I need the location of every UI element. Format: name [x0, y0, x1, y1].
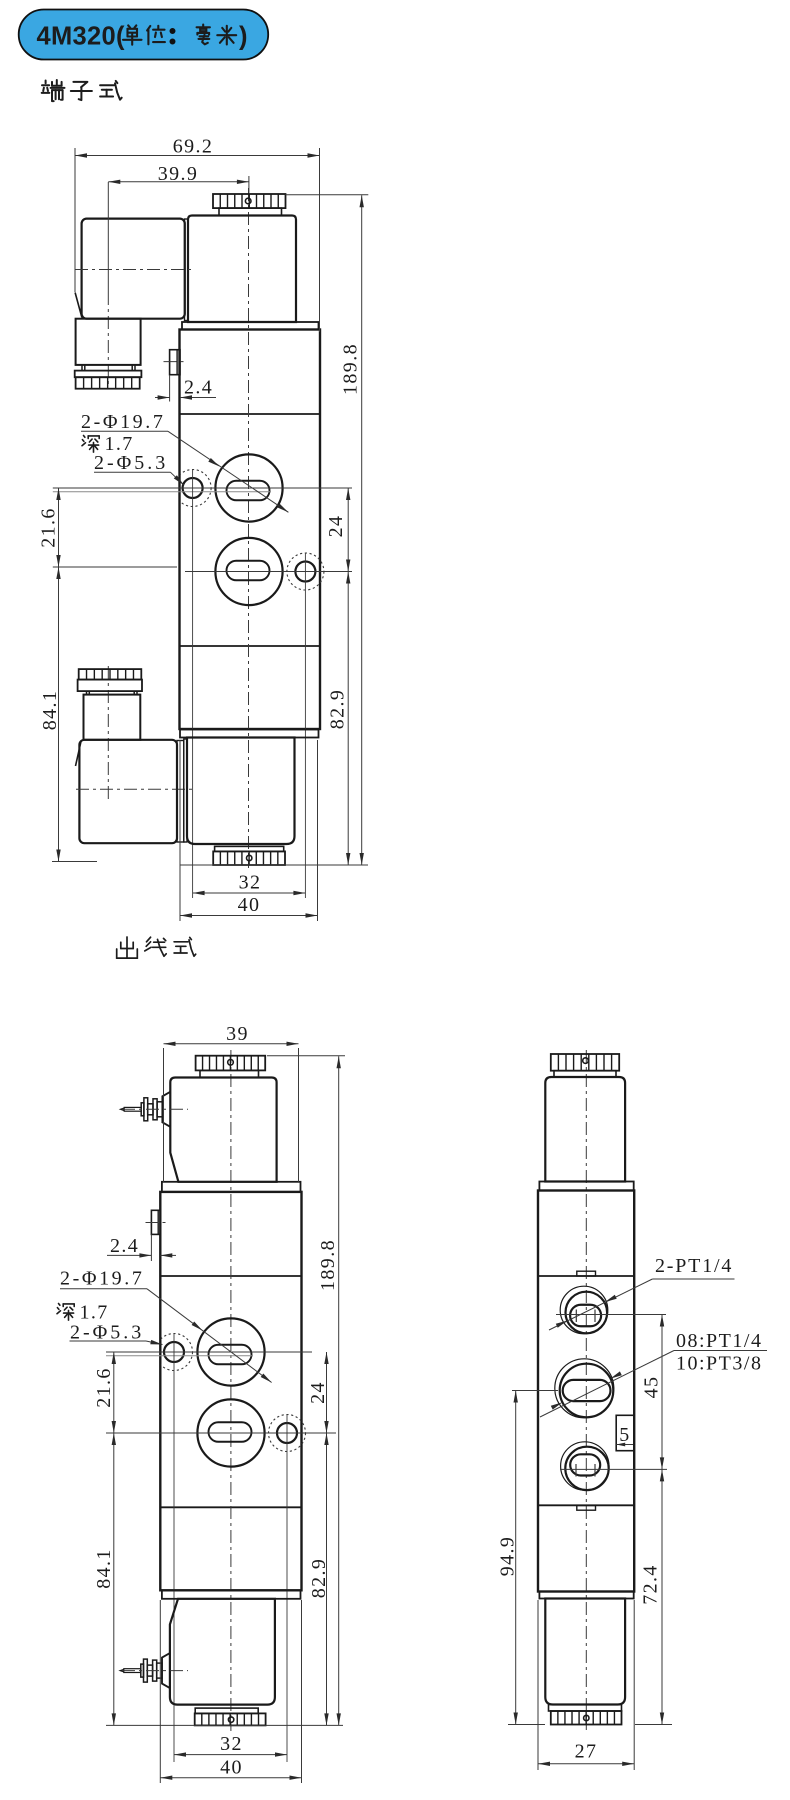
- svg-text:72.4: 72.4: [640, 1564, 662, 1605]
- svg-text:189.8: 189.8: [340, 343, 362, 395]
- svg-text:2-Φ19.7: 2-Φ19.7: [60, 1268, 144, 1290]
- svg-text:2-PT1/4: 2-PT1/4: [655, 1255, 733, 1277]
- svg-text:32: 32: [239, 872, 262, 894]
- svg-text:21.6: 21.6: [38, 507, 60, 548]
- svg-text:84.1: 84.1: [93, 1548, 115, 1589]
- svg-text:27: 27: [575, 1741, 598, 1763]
- svg-text:10:PT3/8: 10:PT3/8: [676, 1353, 762, 1375]
- svg-text:4M320(: 4M320(: [37, 22, 125, 50]
- svg-text:189.8: 189.8: [317, 1239, 339, 1291]
- svg-text:2.4: 2.4: [184, 377, 213, 399]
- svg-text:39.9: 39.9: [158, 163, 199, 185]
- svg-text:84.1: 84.1: [39, 690, 61, 731]
- svg-text:82.9: 82.9: [327, 689, 349, 730]
- svg-text:32: 32: [220, 1733, 243, 1755]
- svg-text:21.6: 21.6: [93, 1367, 115, 1408]
- svg-text:08:PT1/4: 08:PT1/4: [676, 1330, 762, 1352]
- svg-text:24: 24: [325, 515, 347, 538]
- svg-text:): ): [239, 22, 249, 50]
- svg-text:39: 39: [226, 1023, 249, 1045]
- svg-text:24: 24: [307, 1381, 329, 1404]
- svg-text:2-Φ19.7: 2-Φ19.7: [81, 411, 165, 433]
- svg-text:40: 40: [238, 894, 261, 916]
- svg-text:82.9: 82.9: [308, 1558, 330, 1599]
- svg-text:69.2: 69.2: [173, 136, 214, 158]
- svg-text:45: 45: [641, 1376, 663, 1399]
- svg-text:40: 40: [220, 1757, 243, 1779]
- svg-text:2.4: 2.4: [110, 1235, 139, 1257]
- svg-text:94.9: 94.9: [497, 1536, 519, 1577]
- svg-text:2-Φ5.3: 2-Φ5.3: [94, 452, 168, 474]
- svg-text:2-Φ5.3: 2-Φ5.3: [70, 1322, 144, 1344]
- svg-text:1.7: 1.7: [80, 1302, 109, 1324]
